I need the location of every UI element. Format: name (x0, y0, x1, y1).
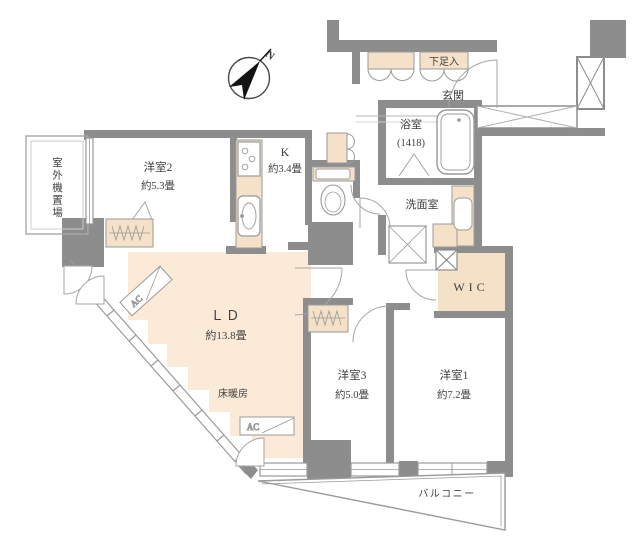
kitchen-sink-icon (238, 196, 260, 236)
bedroom2-label: 洋室2 (144, 160, 173, 174)
compass-north-label: N (263, 48, 277, 62)
room-fills (128, 252, 505, 458)
common-corridor (477, 57, 604, 128)
floor-plan-svg: AC AC N 洋室2 約5.3畳 K 約3.4畳 下足入 玄関 浴室 (141… (0, 0, 640, 546)
bedroom3-door-arc (353, 306, 389, 342)
walls (62, 20, 626, 482)
balcony-outline (258, 473, 505, 530)
bedroom2-door (132, 202, 152, 220)
bedroom3-label: 洋室3 (338, 368, 367, 382)
bathtub-icon (437, 110, 474, 174)
vanity-basin-icon (454, 198, 472, 230)
compass-icon: N (229, 48, 277, 100)
floor-heating-label: 床暖房 (218, 387, 248, 400)
toilet-icon (316, 169, 350, 215)
bedroom1-door-arc (406, 270, 436, 300)
washroom-label: 洗面室 (406, 197, 439, 211)
floor-plan: AC AC N 洋室2 約5.3畳 K 約3.4畳 下足入 玄関 浴室 (141… (0, 0, 640, 546)
shoe-cabinet-label: 下足入 (429, 56, 459, 68)
hall-cabinet (327, 133, 347, 163)
bedroom1-size: 約7.2畳 (437, 388, 472, 401)
ld-label: ＬＤ (211, 308, 242, 323)
bath-folding-door (399, 154, 429, 176)
small-shaft-box (436, 250, 457, 270)
ac-unit-2: AC (240, 417, 294, 435)
ac2-label: AC (247, 422, 260, 432)
wic-label: WIC (453, 280, 488, 294)
bedroom3-size: 約5.0畳 (335, 388, 370, 401)
outdoor-unit-label: 室外機置場 (44, 148, 68, 228)
bedroom3-closet (308, 305, 348, 332)
wic-corner-cabinet (433, 224, 457, 247)
kitchen-label: K (281, 145, 290, 159)
entrance-label: 玄関 (442, 88, 464, 102)
balcony-label: バルコニー (418, 488, 475, 500)
bedroom1-label: 洋室1 (440, 368, 469, 382)
stove-icon (238, 142, 260, 176)
washer-pan-icon (389, 226, 426, 263)
kitchen-size: 約3.4畳 (268, 162, 303, 175)
bedroom2-closet (106, 219, 153, 247)
hall-storage-box (368, 52, 414, 69)
bathroom-size: (1418) (397, 138, 425, 149)
ld-size: 約13.8畳 (205, 328, 246, 342)
bedroom2-size: 約5.3畳 (141, 179, 176, 192)
bathroom-label: 浴室 (400, 117, 422, 131)
